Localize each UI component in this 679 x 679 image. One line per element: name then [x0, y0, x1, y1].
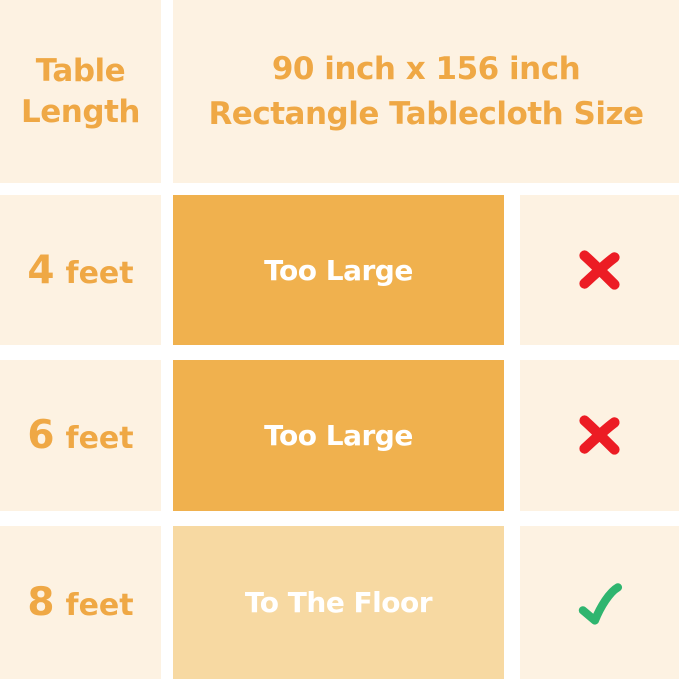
- row-4ft-fit-label: Too Large: [264, 254, 413, 287]
- header-title-line1: 90 inch x 156 inch: [272, 47, 580, 92]
- x-mark-icon: [576, 249, 623, 292]
- row-8ft-fit-block: To The Floor: [173, 526, 504, 679]
- row-4ft-length-cell: 4 feet: [0, 195, 161, 345]
- x-mark-icon: [576, 414, 623, 457]
- header-title-line2: Rectangle Tablecloth Size: [208, 92, 643, 137]
- row-6ft-length-unit: feet: [66, 421, 134, 456]
- row-8ft-status-cell: [520, 526, 679, 679]
- header-title-cell: 90 inch x 156 inch Rectangle Tablecloth …: [173, 0, 679, 183]
- row-8ft-length-unit: feet: [66, 588, 134, 623]
- row-6ft-fit-block: Too Large: [173, 360, 504, 511]
- row-6ft-length-label: 6 feet: [27, 413, 133, 458]
- row-6ft-length-cell: 6 feet: [0, 360, 161, 511]
- row-8ft-length-label: 8 feet: [27, 580, 133, 625]
- header-table-length-cell: Table Length: [0, 0, 161, 183]
- row-6ft-status-cell: [520, 360, 679, 511]
- check-mark-icon: [575, 580, 624, 626]
- tablecloth-size-chart: Table Length 90 inch x 156 inch Rectangl…: [0, 0, 679, 679]
- row-4ft-status-cell: [520, 195, 679, 345]
- row-4ft-length-unit: feet: [66, 256, 134, 291]
- row-8ft-length-number: 8: [27, 580, 54, 625]
- row-4ft-fit-block: Too Large: [173, 195, 504, 345]
- row-6ft-length-number: 6: [27, 413, 54, 458]
- row-8ft-length-cell: 8 feet: [0, 526, 161, 679]
- row-6ft-fit-label: Too Large: [264, 419, 413, 452]
- row-4ft-length-label: 4 feet: [27, 248, 133, 293]
- row-8ft-fit-label: To The Floor: [245, 586, 432, 619]
- header-table-length-line2: Length: [21, 92, 140, 133]
- header-table-length-line1: Table: [36, 51, 125, 92]
- row-4ft-length-number: 4: [27, 248, 54, 293]
